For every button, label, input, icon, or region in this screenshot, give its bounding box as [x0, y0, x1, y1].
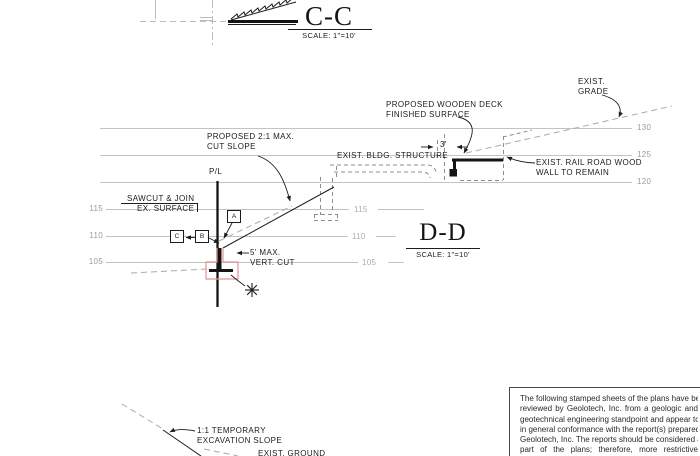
temp-slope-label: 1:1 TEMPORARY EXCAVATION SLOPE [197, 426, 282, 446]
vert-cut-label: 5' MAX. VERT. CUT [250, 248, 295, 268]
callout-box-c: C [170, 230, 184, 243]
section-scale-cc: SCALE: 1"=10' [286, 31, 372, 40]
label-line-1: 1:1 TEMPORARY [197, 426, 282, 436]
rail-wall-deck-linework [421, 117, 535, 181]
elevation-label-105-left: 105 [79, 257, 103, 266]
property-line-label: P/L [209, 167, 222, 177]
label-line-2: VERT. CUT [250, 258, 295, 268]
label-line-1: 5' MAX. [250, 248, 295, 258]
elevation-label-130: 130 [637, 123, 651, 132]
elevation-label-115-left: 115 [79, 204, 103, 213]
label-line-2: WALL TO REMAIN [536, 168, 642, 178]
exist-ground-label: EXIST. GROUND [258, 449, 325, 456]
section-title-dd: D-D [402, 219, 484, 247]
drawing-sheet: C-C SCALE: 1"=10' D-D SCALE: 1"=10' EXIS… [0, 0, 700, 456]
section-scale-dd: SCALE: 1"=10' [402, 250, 484, 259]
label-line-2: EXCAVATION SLOPE [197, 436, 282, 446]
section-title-cc: C-C [286, 1, 372, 32]
elevation-label-125: 125 [637, 150, 651, 159]
elevation-label-110-left: 110 [79, 231, 103, 240]
callout-box-b: B [195, 230, 209, 243]
label-line-1: PROPOSED WOODEN DECK [386, 100, 503, 110]
proposed-deck-label: PROPOSED WOODEN DECK FINISHED SURFACE [386, 100, 503, 120]
elevation-label-110-mid: 110 [352, 232, 366, 241]
note-line: Geolotech, Inc. The reports should be co… [520, 435, 698, 445]
sawcut-label: SAWCUT & JOIN EX. SURFACE [127, 194, 194, 214]
label-line-2: FINISHED SURFACE [386, 110, 503, 120]
label-line-1: EXIST. RAIL ROAD WOOD [536, 158, 642, 168]
title-underlines [288, 30, 480, 249]
elevation-label-105-mid: 105 [362, 258, 376, 267]
elevation-label-120: 120 [637, 177, 651, 186]
deck-dimension-label: 3' [440, 140, 447, 150]
note-line: reviewed by Geolotech, Inc. from a geolo… [520, 404, 698, 414]
note-line: geotechnical engineering standpoint and … [520, 415, 698, 425]
note-line: in general conformance with the report(s… [520, 425, 698, 435]
star-symbol [245, 283, 259, 297]
geotech-review-note: The following stamped sheets of the plan… [509, 387, 700, 456]
elevation-label-115-mid: 115 [354, 205, 368, 214]
label-line-1: PROPOSED 2:1 MAX. [207, 132, 294, 142]
label-line-2: GRADE [578, 87, 608, 97]
cc-section-fragment [140, 0, 298, 47]
exist-grade-label: EXIST. GRADE [578, 77, 608, 97]
cut-slope-linework [131, 156, 334, 307]
exist-bldg-label: EXIST. BLDG. STRUCTURE [337, 151, 448, 161]
callout-box-a: A [227, 210, 241, 223]
label-line-1: EXIST. [578, 77, 608, 87]
note-line: The following stamped sheets of the plan… [520, 394, 698, 404]
note-line: part of the plans; therefore, more restr… [520, 445, 698, 455]
label-line-2: EX. SURFACE [127, 204, 194, 214]
label-line-1: SAWCUT & JOIN [127, 194, 194, 204]
rail-wall-label: EXIST. RAIL ROAD WOOD WALL TO REMAIN [536, 158, 642, 178]
cut-slope-label: PROPOSED 2:1 MAX. CUT SLOPE [207, 132, 294, 152]
label-line-2: CUT SLOPE [207, 142, 294, 152]
